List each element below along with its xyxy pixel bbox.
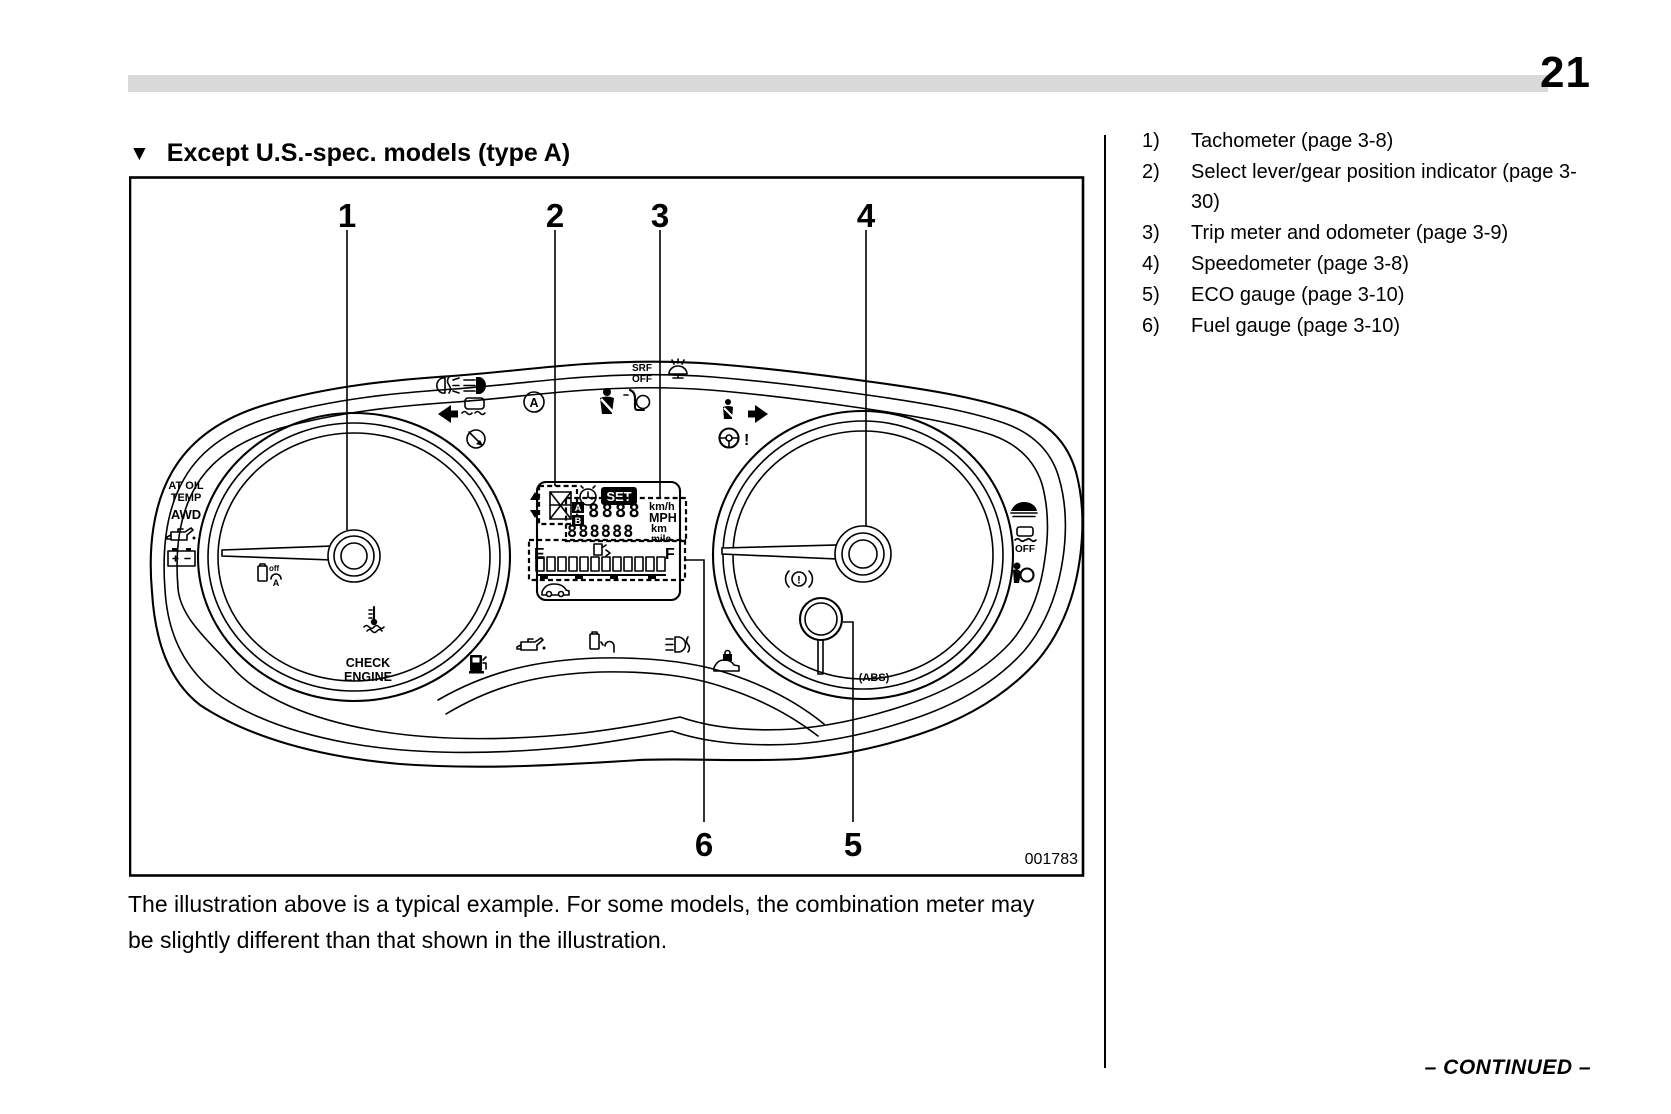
speedometer-needle [722,545,838,559]
header-rule-bar [128,75,1548,92]
fuel-bar-segments [536,557,665,571]
airbag-warning-icon [1013,563,1034,584]
fuel-pump-small-icon [594,544,610,556]
gear-position-indicator [550,492,571,519]
seatbelt-warning-icon [600,388,614,414]
callout-2: 2 [546,197,564,234]
rear-fog-light-icon [666,637,690,652]
power-steering-warning-icon: ! [720,429,750,450]
svg-text:!: ! [797,575,801,587]
srf-off-label-1: SRF [632,363,652,374]
legend-item-tachometer: 1) Tachometer (page 3-8) [1142,126,1588,156]
trip-digits: 8888 [588,500,642,522]
lcd-display: SET A B 8888 km/h MPH 888888 km mile E F [529,482,686,600]
section-heading-text: Except U.S.-spec. models (type A) [167,139,570,168]
svg-text:!: ! [744,432,749,449]
legend-num: 4) [1142,249,1191,279]
column-divider [1104,135,1106,1068]
turn-signal-right-icon [748,405,768,423]
idle-stop-off-icon: off A [258,564,281,588]
vdc-off-icon: OFF [1015,527,1036,555]
callout-5: 5 [844,826,862,863]
legend-item-trip-odometer: 3) Trip meter and odometer (page 3-9) [1142,218,1588,248]
legend-item-select-lever: 2) Select lever/gear position indicator … [1142,157,1588,217]
turn-signal-left-icon [438,405,458,423]
combination-meter-illustration: SET A B 8888 km/h MPH 888888 km mile E F [129,176,1085,877]
lead-vehicle-icon [1011,502,1037,517]
legend-label: ECO gauge (page 3-10) [1191,280,1588,310]
battery-icon [168,548,195,566]
legend-label: Select lever/gear position indicator (pa… [1191,157,1588,217]
passenger-airbag-icon [624,390,650,410]
legend-label: Fuel gauge (page 3-10) [1191,311,1588,341]
cluster-housing-contours [151,362,1083,767]
combination-meter-figure: SET A B 8888 km/h MPH 888888 km mile E F [129,176,1085,877]
vdc-off-label: OFF [1015,544,1035,555]
callout-1: 1 [338,197,356,234]
door-ajar-icon [542,584,569,597]
manual-page: { "page": { "number": "21", "continued":… [0,0,1671,1114]
legend-num: 5) [1142,280,1191,310]
high-beam-icon [464,377,486,394]
section-marker-icon: ▼ [129,143,150,164]
coolant-temp-icon [364,607,384,633]
section-heading: ▼ Except U.S.-spec. models (type A) [129,139,570,168]
idle-stop-icon [590,632,614,652]
caption-line-1: The illustration above is a typical exam… [128,886,1108,922]
continued-footer: – CONTINUED – [1425,1056,1591,1080]
check-engine-label-1: CHECK [346,656,390,670]
fuel-full-label: F [665,546,675,563]
abs-icon: (ABS) [859,672,890,684]
at-oil-temp-label-1: AT OIL [168,480,204,492]
legend-label: Tachometer (page 3-8) [1191,126,1588,156]
caption-line-2: be slightly different than that shown in… [128,922,1108,958]
callout-6: 6 [695,826,713,863]
legend-num: 1) [1142,126,1191,156]
legend-list: 1) Tachometer (page 3-8) 2) Select lever… [1142,126,1588,342]
legend-num: 2) [1142,157,1191,217]
legend-num: 6) [1142,311,1191,341]
speedometer-dial [713,411,1013,699]
figure-caption: The illustration above is a typical exam… [128,886,1108,958]
trip-a-label: A [575,503,582,513]
oil-pressure-icon [167,528,196,540]
page-number: 21 [1540,48,1591,98]
srf-off-label-2: OFF [632,374,652,385]
legend-item-eco-gauge: 5) ECO gauge (page 3-10) [1142,280,1588,310]
svg-text:off: off [269,564,280,573]
lower-panel-line-1 [438,658,824,724]
awd-label: AWD [171,507,201,522]
oil-temp-icon [517,638,546,650]
legend-num: 3) [1142,218,1191,248]
tachometer-needle [222,546,334,560]
figure-code: 001783 [1025,851,1078,868]
legend-label: Speedometer (page 3-8) [1191,249,1588,279]
svg-text:A: A [273,578,280,588]
check-engine-label-2: ENGINE [344,670,392,684]
fuel-gauge: E F [529,540,685,580]
odometer-digits: 888888 [567,522,634,542]
legend-label: Trip meter and odometer (page 3-9) [1191,218,1588,248]
at-oil-temp-label-2: TEMP [171,492,202,504]
callout-3: 3 [651,197,669,234]
callout-4: 4 [857,197,876,234]
parking-brake-icon: ! [786,571,813,587]
fuel-pump-icon [469,655,486,674]
eco-gauge [800,598,842,674]
auto-stop-off-icon [467,430,485,448]
legend-item-speedometer: 4) Speedometer (page 3-8) [1142,249,1588,279]
svg-text:A: A [529,396,538,410]
rear-seatbelt-icon [723,399,733,419]
security-indicator-icon [714,651,739,672]
legend-item-fuel-gauge: 6) Fuel gauge (page 3-10) [1142,311,1588,341]
